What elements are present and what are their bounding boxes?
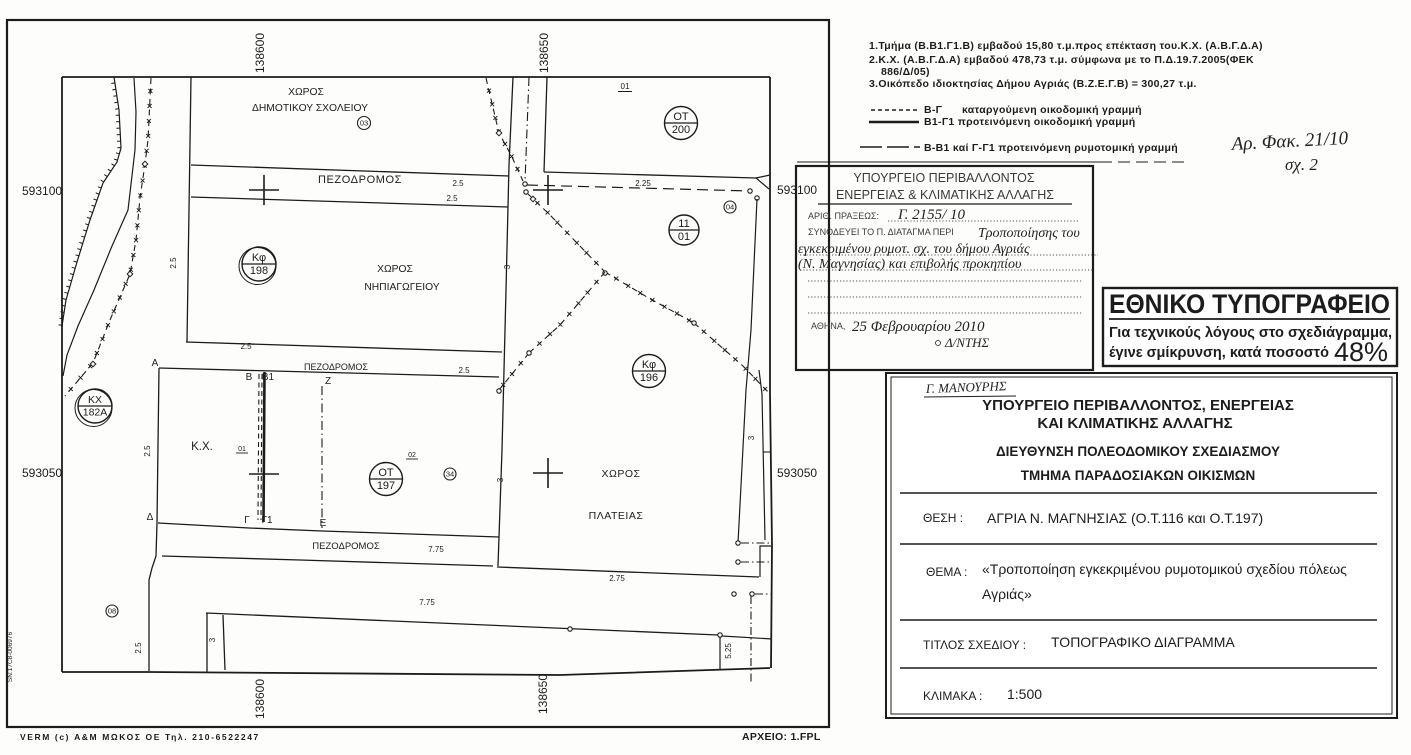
svg-text:ΚΧ: ΚΧ xyxy=(88,394,102,406)
svg-text:καταργούμενη οικοδομική γραμμή: καταργούμενη οικοδομική γραμμή xyxy=(962,104,1142,116)
svg-text:Τροποποίησης του: Τροποποίησης του xyxy=(978,226,1080,241)
svg-text:ΤΙΤΛΟΣ ΣΧΕΔΙΟΥ :: ΤΙΤΛΟΣ ΣΧΕΔΙΟΥ : xyxy=(923,638,1026,652)
svg-text:ΠΕΖΟΔΡΟΜΟΣ: ΠΕΖΟΔΡΟΜΟΣ xyxy=(304,362,368,372)
svg-text:Γ: Γ xyxy=(244,515,250,526)
svg-text:2.25: 2.25 xyxy=(635,179,651,188)
svg-text:Β: Β xyxy=(246,372,253,383)
svg-text:196: 196 xyxy=(640,372,658,384)
svg-text:7.75: 7.75 xyxy=(419,598,435,607)
svg-text:Δ: Δ xyxy=(147,512,154,523)
svg-text:Κφ: Κφ xyxy=(642,359,656,371)
svg-text:593100: 593100 xyxy=(777,183,817,197)
svg-text:ΑΡΙΘ. ΠΡΑΞΕΩΣ:: ΑΡΙΘ. ΠΡΑΞΕΩΣ: xyxy=(808,211,879,221)
svg-text:ΟΤ: ΟΤ xyxy=(378,467,394,479)
svg-text:3.Οικόπεδο ιδιοκτησίας Δήμου Α: 3.Οικόπεδο ιδιοκτησίας Δήμου Αγριάς (Β.Ζ… xyxy=(869,78,1197,90)
svg-text:01: 01 xyxy=(238,446,246,453)
svg-text:ΟΤ: ΟΤ xyxy=(673,111,689,123)
svg-text:3: 3 xyxy=(208,637,217,642)
svg-text:138600: 138600 xyxy=(253,33,267,73)
svg-text:Α: Α xyxy=(152,358,159,369)
svg-text:ΤΜΗΜΑ ΠΑΡΑΔΟΣΙΑΚΩΝ ΟΙΚΙΣΜΩΝ: ΤΜΗΜΑ ΠΑΡΑΔΟΣΙΑΚΩΝ ΟΙΚΙΣΜΩΝ xyxy=(1021,468,1255,483)
svg-text:Ζ: Ζ xyxy=(325,376,331,387)
svg-text:593100: 593100 xyxy=(22,184,62,198)
svg-text:138650: 138650 xyxy=(536,674,550,714)
svg-text:Β-Γ: Β-Γ xyxy=(924,104,943,116)
svg-text:2.75: 2.75 xyxy=(609,574,625,583)
svg-text:Δ/ΝΤΗΣ: Δ/ΝΤΗΣ xyxy=(944,335,990,350)
svg-text:σχ. 2: σχ. 2 xyxy=(1285,155,1318,174)
svg-text:04: 04 xyxy=(726,203,734,212)
svg-text:182Α: 182Α xyxy=(83,407,108,419)
svg-text:2.5: 2.5 xyxy=(134,642,143,654)
svg-text:03: 03 xyxy=(360,119,368,128)
svg-text:ΧΩΡΟΣ: ΧΩΡΟΣ xyxy=(601,468,640,480)
svg-text:11: 11 xyxy=(678,218,689,230)
svg-text:593050: 593050 xyxy=(777,466,817,480)
svg-text:08: 08 xyxy=(108,607,116,616)
svg-text:2.5: 2.5 xyxy=(240,342,252,351)
svg-text:ΥΠΟΥΡΓΕΙΟ ΠΕΡΙΒΑΛΛΟΝΤΟΣ: ΥΠΟΥΡΓΕΙΟ ΠΕΡΙΒΑΛΛΟΝΤΟΣ xyxy=(853,171,1034,185)
svg-text:2.5: 2.5 xyxy=(169,257,178,269)
svg-text:Κφ: Κφ xyxy=(252,252,266,264)
svg-text:198: 198 xyxy=(250,265,268,277)
svg-text:Β1-Γ1 προτεινόμενη οικοδομική: Β1-Γ1 προτεινόμενη οικοδομική γραμμή xyxy=(924,116,1135,128)
svg-text:ΥΠΟΥΡΓΕΙΟ ΠΕΡΙΒΑΛΛΟΝΤΟΣ, ΕΝΕ: ΥΠΟΥΡΓΕΙΟ ΠΕΡΙΒΑΛΛΟΝΤΟΣ, ΕΝΕΡΓΕΙΑΣ xyxy=(982,397,1294,414)
svg-text:01: 01 xyxy=(621,82,630,91)
svg-text:886/Δ/05): 886/Δ/05) xyxy=(881,66,930,78)
svg-text:25 Φεβρουαρίου 2010: 25 Φεβρουαρίου 2010 xyxy=(852,319,985,335)
svg-text:138650: 138650 xyxy=(537,33,551,73)
svg-text:ΔΙΕΥΘΥΝΣΗ ΠΟΛΕΟΔΟΜΙΚΟΥ ΣΧΕΔΙ: ΔΙΕΥΘΥΝΣΗ ΠΟΛΕΟΔΟΜΙΚΟΥ ΣΧΕΔΙΑΣΜΟΥ xyxy=(996,444,1280,459)
svg-text:Αγριάς»: Αγριάς» xyxy=(982,586,1032,602)
svg-text:ΕΝΕΡΓΕΙΑΣ & ΚΛΙΜΑΤΙΚΗΣ ΑΛΛΑ: ΕΝΕΡΓΕΙΑΣ & ΚΛΙΜΑΤΙΚΗΣ ΑΛΛΑΓΗΣ xyxy=(836,188,1054,202)
svg-text:ΤΟΠΟΓΡΑΦΙΚΟ ΔΙΑΓΡΑΜΜΑ: ΤΟΠΟΓΡΑΦΙΚΟ ΔΙΑΓΡΑΜΜΑ xyxy=(1051,634,1235,650)
svg-text:ΠΕΖΟΔΡΟΜΟΣ: ΠΕΖΟΔΡΟΜΟΣ xyxy=(318,174,402,186)
svg-text:ΑΘΗΝΑ,: ΑΘΗΝΑ, xyxy=(811,321,845,331)
svg-text:2.Κ.Χ. (Α.Β.Γ.Δ.Α) εμβαδού 478: 2.Κ.Χ. (Α.Β.Γ.Δ.Α) εμβαδού 478,73 τ.μ. σ… xyxy=(869,54,1254,66)
svg-text:ΧΩΡΟΣ: ΧΩΡΟΣ xyxy=(377,264,413,275)
svg-text:ΣΥΝΟΔΕΥΕΙ ΤΟ Π. ΔΙΑΤΑΓΜΑ ΠΕΡΙ: ΣΥΝΟΔΕΥΕΙ ΤΟ Π. ΔΙΑΤΑΓΜΑ ΠΕΡΙ xyxy=(808,227,954,237)
svg-text:ΔΗΜΟΤΙΚΟΥ ΣΧΟΛΕΙΟΥ: ΔΗΜΟΤΙΚΟΥ ΣΧΟΛΕΙΟΥ xyxy=(252,103,368,114)
svg-text:3: 3 xyxy=(496,477,505,482)
svg-text:02: 02 xyxy=(408,452,416,459)
svg-text:ΚΑΙ ΚΛΙΜΑΤΙΚΗΣ ΑΛΛΑΓΗΣ: ΚΑΙ ΚΛΙΜΑΤΙΚΗΣ ΑΛΛΑΓΗΣ xyxy=(1037,415,1232,432)
svg-text:ΕΘΝΙΚΟ ΤΥΠΟΓΡΑΦΕΙΟ: ΕΘΝΙΚΟ ΤΥΠΟΓΡΑΦΕΙΟ xyxy=(1109,289,1390,319)
svg-text:«Τροποποίηση εγκεκριμένου ρυμο: «Τροποποίηση εγκεκριμένου ρυμοτομικού σχ… xyxy=(982,561,1347,577)
svg-text:1.Τμήμα (Β.Β1.Γ1.Β) εμβαδού 15: 1.Τμήμα (Β.Β1.Γ1.Β) εμβαδού 15,80 τ.μ.πρ… xyxy=(869,40,1263,52)
svg-text:ΚΛΙΜΑΚΑ :: ΚΛΙΜΑΚΑ : xyxy=(923,689,982,703)
svg-text:3: 3 xyxy=(747,435,756,440)
svg-text:ΠΛΑΤΕΙΑΣ: ΠΛΑΤΕΙΑΣ xyxy=(589,510,644,522)
svg-text:Κ.Χ.: Κ.Χ. xyxy=(191,441,213,453)
svg-text:SΝ:17C8-006976: SΝ:17C8-006976 xyxy=(7,632,14,683)
svg-text:ΠΕΖΟΔΡΟΜΟΣ: ΠΕΖΟΔΡΟΜΟΣ xyxy=(312,541,380,552)
svg-text:VERM (c) Α&Μ ΜΩΚΟΣ ΟΕ Τηλ. 21: VERM (c) Α&Μ ΜΩΚΟΣ ΟΕ Τηλ. 210-6522247 xyxy=(20,732,260,742)
svg-text:ΧΩΡΟΣ: ΧΩΡΟΣ xyxy=(288,87,324,98)
svg-text:5.25: 5.25 xyxy=(724,643,733,659)
svg-text:3: 3 xyxy=(503,264,512,269)
svg-text:Β-Β1 καί Γ-Γ1 προτεινόμενη ρυμ: Β-Β1 καί Γ-Γ1 προτεινόμενη ρυμοτομική γρ… xyxy=(924,142,1178,154)
svg-text:1:500: 1:500 xyxy=(1007,686,1042,702)
svg-text:ΝΗΠΙΑΓΩΓΕΙΟΥ: ΝΗΠΙΑΓΩΓΕΙΟΥ xyxy=(364,282,439,293)
svg-text:ΘΕΜΑ :: ΘΕΜΑ : xyxy=(926,565,967,579)
svg-text:197: 197 xyxy=(377,480,395,492)
svg-text:2.5: 2.5 xyxy=(458,366,470,375)
svg-text:2.5: 2.5 xyxy=(446,194,458,203)
svg-text:Ε: Ε xyxy=(320,518,327,529)
svg-text:ΑΓΡΙΑ Ν. ΜΑΓΝΗΣΙΑΣ (Ο.Τ.116 κ: ΑΓΡΙΑ Ν. ΜΑΓΝΗΣΙΑΣ (Ο.Τ.116 και Ο.Τ.197) xyxy=(987,510,1263,526)
svg-text:2.5: 2.5 xyxy=(452,179,464,188)
svg-text:2.5: 2.5 xyxy=(143,445,152,457)
svg-text:7.75: 7.75 xyxy=(428,545,444,554)
svg-text:200: 200 xyxy=(672,124,690,136)
svg-text:έγινε σμίκρυνση, κατά ποσοστό: έγινε σμίκρυνση, κατά ποσοστό xyxy=(1109,345,1329,361)
svg-text:593050: 593050 xyxy=(22,466,62,480)
svg-text:34: 34 xyxy=(446,470,454,479)
svg-text:Γ. ΜΑΝΟΥΡΗΣ: Γ. ΜΑΝΟΥΡΗΣ xyxy=(925,378,1008,396)
svg-text:ΑΡΧΕΙΟ: 1.FPL: ΑΡΧΕΙΟ: 1.FPL xyxy=(742,731,821,743)
svg-text:01: 01 xyxy=(678,231,690,243)
svg-text:ΘΕΣΗ :: ΘΕΣΗ : xyxy=(923,511,963,525)
svg-text:48%: 48% xyxy=(1334,337,1388,367)
svg-text:138600: 138600 xyxy=(253,679,267,719)
